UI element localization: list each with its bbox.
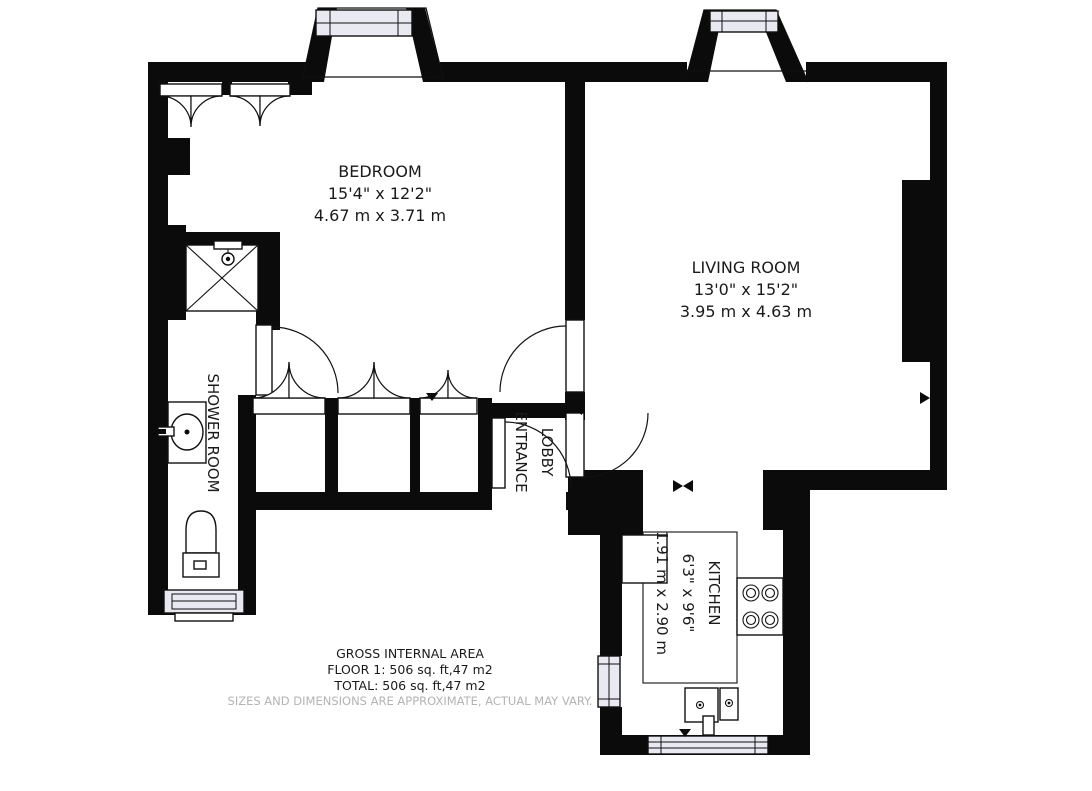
wardrobe-door-2a [230,96,260,126]
marker-kitchen-opening-left [673,480,683,492]
door-leaf-lobby-living [566,413,584,477]
kitchen-label: KITCHEN [705,561,723,626]
closet-door-2a [338,362,374,398]
wall-top-right [806,62,947,82]
closet-frame-1 [253,398,325,414]
wall-bottom-right-of-lobby-door [566,492,600,510]
door-arc-bedroom-living [500,326,566,392]
floor-plan-svg: BEDROOM 15'4" x 12'2" 4.67 m x 3.71 m LI… [0,0,1092,791]
wall-enclosure-left [168,225,186,320]
closet-door-2b [374,362,410,398]
basin-tap-dot [158,429,166,434]
wall-kitchen-right [783,530,810,755]
summary-disclaimer: SIZES AND DIMENSIONS ARE APPROXIMATE, AC… [228,694,593,708]
area-summary: GROSS INTERNAL AREA FLOOR 1: 506 sq. ft,… [228,646,593,708]
door-leaf-bedroom-living [566,320,584,392]
basin-drain-dot [185,430,190,435]
kitchen-bottom-window [648,736,768,754]
wall-bottom-living [790,470,947,490]
entrance-lobby-label-line1: ENTRANCE [512,411,530,492]
wardrobe-frame-2 [230,84,290,96]
summary-title: GROSS INTERNAL AREA [336,646,484,661]
kitchen-sink-drain-2-dot [728,702,731,705]
kitchen-fixtures [622,532,783,735]
kitchen-sink-drain-1-dot [699,704,702,707]
bedroom-dims-imperial: 15'4" x 12'2" [328,184,432,203]
kitchen-dims-metric: 1.91 m x 2.90 m [653,531,671,655]
wall-right [930,62,947,490]
wall-closet-divider-1 [325,398,338,492]
living-room-dims-imperial: 13'0" x 15'2" [694,280,798,299]
stove [737,578,783,635]
wall-kitchen-left-lower [600,707,622,737]
chimney-breast [902,180,930,362]
wall-left-pier [168,138,190,175]
wall-top-middle [440,62,687,82]
toilet-flush-button [194,561,206,569]
shower-head-dot [226,257,230,261]
wall-closet-divider-2 [410,398,420,492]
shower-room-window-sill [175,613,233,621]
wall-shower-right [238,395,256,590]
marker-living-right-wall [920,392,930,404]
wall-bottom-under-closets [238,492,492,510]
bay-window-living [685,10,808,82]
closet-door-1b [289,362,325,398]
bedroom-label: BEDROOM [338,162,422,181]
bay-window-bedroom [302,8,444,82]
shower-head-bracket [214,241,242,249]
closet-frame-2 [338,398,410,414]
closets-bottom [253,362,477,414]
closet-frame-3 [420,398,477,414]
floor-plan-page: BEDROOM 15'4" x 12'2" 4.67 m x 3.71 m LI… [0,0,1092,791]
door-leaf-entrance [492,418,505,488]
kitchen-dims-imperial: 6'3" x 9'6" [679,554,697,633]
door-leaf-bedroom-shower [256,325,272,395]
wall-enclosure-right [256,232,280,330]
marker-kitchen-opening-right [683,480,693,492]
living-room-dims-metric: 3.95 m x 4.63 m [680,302,812,321]
wall-kitchen-left-upper [600,535,622,656]
closet-door-3b [448,370,477,398]
bedroom-dims-metric: 4.67 m x 3.71 m [314,206,446,225]
wardrobe-door-2b [260,96,290,126]
summary-total: TOTAL: 506 sq. ft,47 m2 [333,678,485,693]
wall-left [148,62,168,615]
entrance-lobby-label-line2: LOBBY [538,428,556,477]
wardrobe-frame-1 [160,84,222,96]
wardrobe-door-1b [191,96,222,127]
wall-divider-bed-living-upper [565,82,585,320]
summary-floor: FLOOR 1: 506 sq. ft,47 m2 [327,662,492,677]
kitchen-sink-tap [703,716,714,735]
shower-room-label: SHOWER ROOM [204,373,222,492]
door-arc-lobby-living [584,413,648,477]
wall-kitchen-ne [763,470,810,530]
living-room-label: LIVING ROOM [692,258,801,277]
toilet-bowl [186,511,216,553]
